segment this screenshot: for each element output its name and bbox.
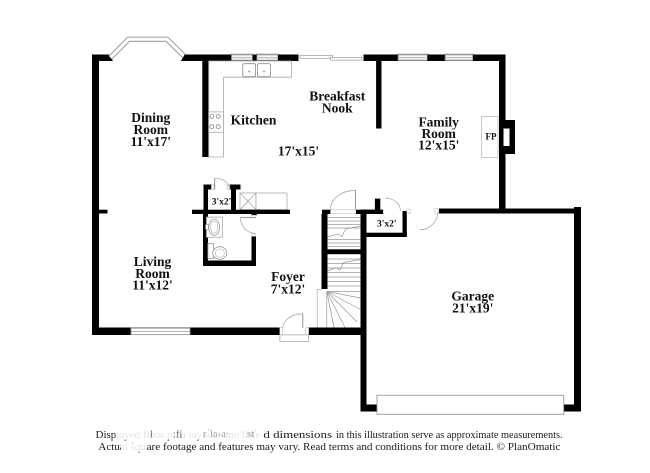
svg-text:21'x19': 21'x19'	[452, 301, 493, 316]
svg-text:l: l	[150, 430, 153, 441]
svg-text:3'x2': 3'x2'	[212, 197, 232, 207]
svg-text:7'x12': 7'x12'	[271, 282, 306, 297]
svg-text:11'x12': 11'x12'	[132, 278, 173, 293]
svg-text:FP: FP	[486, 132, 497, 142]
svg-text:Kitchen: Kitchen	[231, 113, 277, 128]
svg-text:stʾ: stʾ	[247, 429, 258, 440]
svg-text:r´la›a·: r´la›a·	[203, 429, 229, 440]
svg-text::fi: :fi	[173, 430, 182, 441]
svg-text:11'x17': 11'x17'	[131, 134, 172, 149]
svg-text:Nook: Nook	[322, 101, 353, 116]
svg-text:ʾ: ʾ	[131, 442, 135, 453]
svg-text:d dimensions: d dimensions	[263, 429, 332, 441]
svg-text:12'x15': 12'x15'	[418, 138, 459, 153]
svg-text:3'x2': 3'x2'	[377, 220, 397, 230]
svg-text:in this illustration serve as: in this illustration serve as approximat…	[336, 429, 563, 441]
svg-text:are footage and features may v: are footage and features may vary. Read …	[147, 441, 561, 453]
svg-text:17'x15': 17'x15'	[278, 144, 319, 159]
